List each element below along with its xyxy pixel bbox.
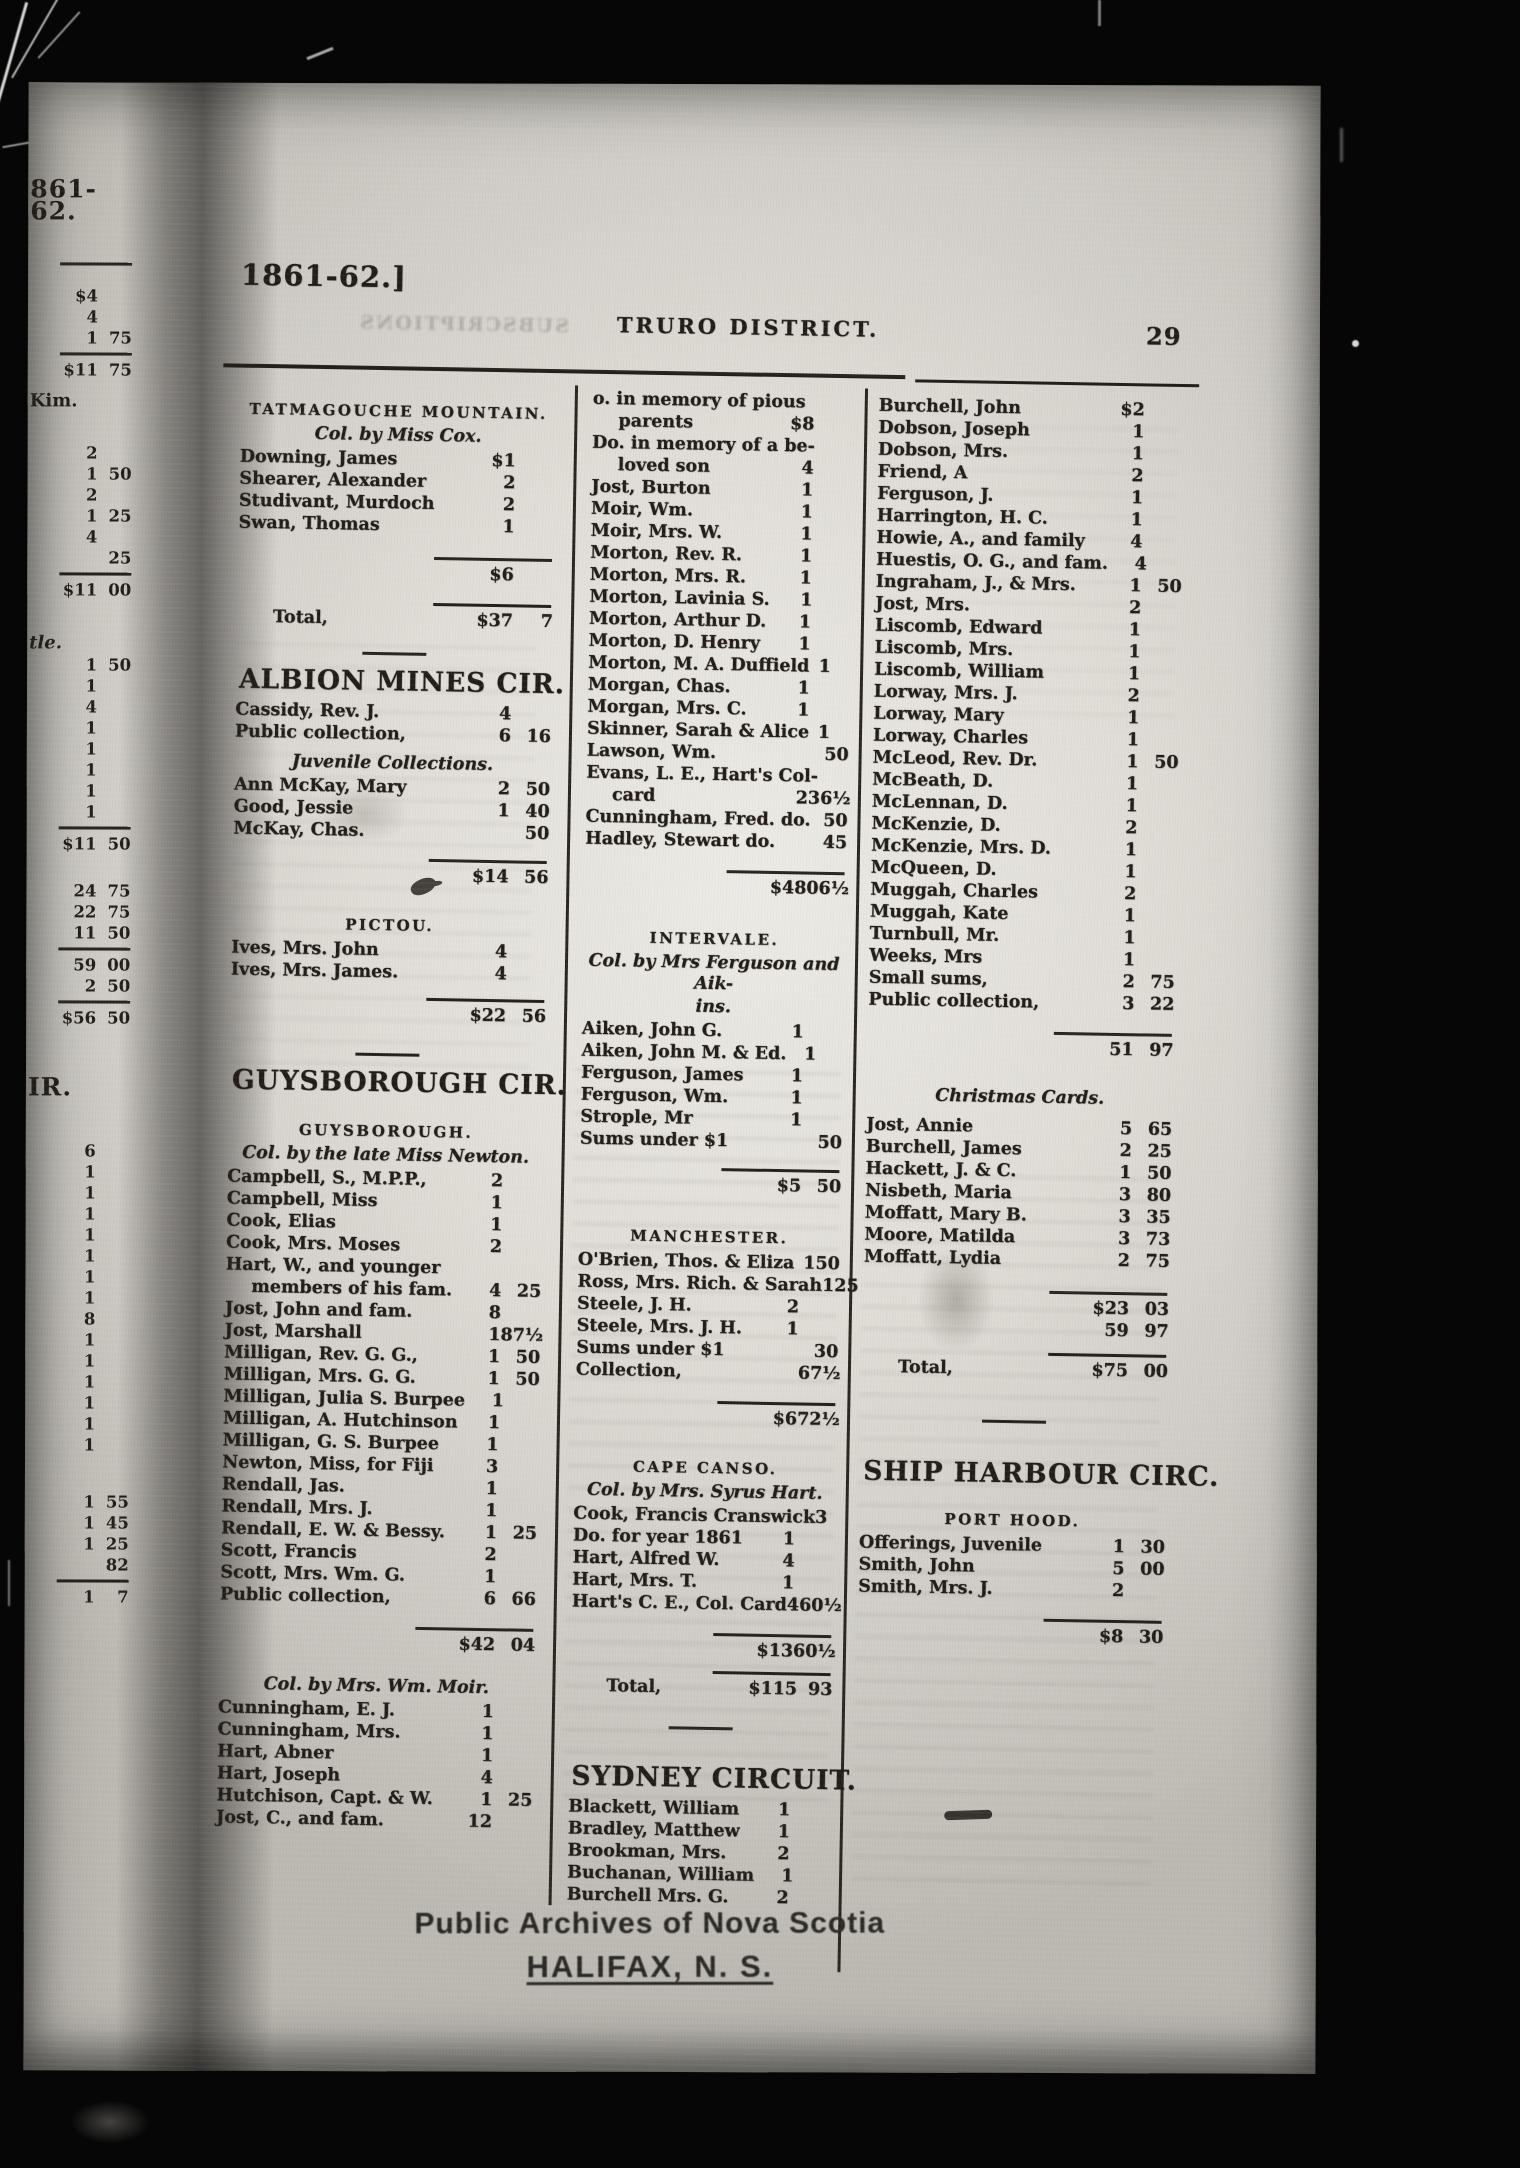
amount-dollars: 1: [766, 633, 810, 656]
section-heading: SHIP HARBOUR CIRC.: [863, 1461, 1163, 1488]
entry-name: Morton, Rev. R.: [590, 542, 768, 567]
amount-cents: 60½: [793, 1640, 833, 1663]
amount-dollars: 2: [764, 787, 808, 810]
amount-cents: 30: [798, 1340, 838, 1363]
collector-note: Juvenile Collections.: [234, 751, 550, 778]
amount-dollars: 12: [448, 1810, 492, 1833]
amount-dollars: 1: [453, 1499, 497, 1522]
separator-dash: [982, 1420, 1046, 1424]
entry-name: Ferguson, James: [581, 1062, 759, 1087]
amount-dollars: 1: [769, 479, 813, 502]
stamp-line-2: HALIFAX, N. S.: [340, 1948, 960, 1985]
amount-dollars: 1: [1097, 575, 1141, 598]
amount-dollars: 1: [449, 1722, 493, 1745]
amount-dollars: 3: [1087, 1183, 1131, 1206]
amount-cents: [1124, 1596, 1164, 1597]
separator-dash: [355, 1053, 419, 1057]
subtotal-spacer: [868, 1051, 1090, 1055]
amount-dollars: 4: [463, 963, 507, 986]
amount-cents: [1144, 437, 1184, 438]
amount-cents: [1143, 525, 1183, 526]
ledger-entry: Sums under $150: [580, 1128, 842, 1155]
amount-dollars: 4: [787, 1594, 800, 1616]
amount-dollars: $48: [762, 877, 806, 900]
amount-cents: [507, 979, 547, 980]
amount-dollars: 1: [453, 1521, 497, 1544]
amount-cents: [789, 1859, 829, 1860]
entry-name: Brookman, Mrs.: [567, 1840, 745, 1865]
amount-dollars: 1: [759, 1065, 803, 1088]
amount-dollars: 1: [758, 1087, 802, 1110]
amount-dollars: 4: [750, 1550, 794, 1573]
subtotal-spacer: [575, 1421, 753, 1424]
amount-cents: [502, 1252, 542, 1253]
amount-cents: [492, 1827, 532, 1828]
amount-dollars: 2: [1097, 597, 1141, 620]
amount-cents: [1135, 965, 1175, 966]
amount-dollars: 1: [449, 1744, 493, 1767]
microfilm-scan: { "header": { "edition": "1861-62.]", "t…: [0, 0, 1520, 2168]
amount-dollars: 1: [1096, 663, 1140, 686]
amount-cents: [1137, 833, 1177, 834]
amount-cents: [1142, 547, 1182, 548]
amount-cents: [514, 580, 554, 581]
amount-dollars: 1: [1081, 1535, 1125, 1558]
subtotal-row: $830: [857, 1622, 1163, 1649]
entry-name: Collection,: [576, 1359, 754, 1384]
entry-name: Jost, Burton: [591, 476, 769, 501]
amount-cents: [500, 1428, 539, 1429]
amount-cents: [813, 518, 853, 519]
film-scratch: [11, 0, 59, 78]
page-number: 29: [1146, 321, 1182, 351]
amount-dollars: 1: [1094, 773, 1138, 796]
amount-dollars: 1: [1087, 1161, 1131, 1184]
amount-cents: [812, 606, 851, 607]
amount-dollars: 1: [751, 1528, 795, 1551]
amount-dollars: 1: [768, 567, 812, 590]
amount-cents: [804, 1038, 844, 1039]
amount-dollars: $2: [1101, 399, 1145, 422]
amount-cents: 80: [1131, 1184, 1171, 1207]
amount-dollars: 1: [452, 1565, 496, 1588]
entry-name: Steele, J. H.: [577, 1293, 755, 1318]
amount-cents: [1135, 943, 1175, 944]
entry-name: Ives, Mrs. James.: [231, 959, 463, 985]
amount-dollars: 2: [1080, 1579, 1124, 1602]
amount-cents: [790, 1815, 830, 1816]
amount-dollars: 2: [471, 472, 515, 495]
amount-dollars: 2: [1086, 1249, 1130, 1272]
amount-cents: 50: [1131, 1162, 1171, 1185]
amount-cents: [504, 1406, 539, 1407]
amount-cents: [803, 1103, 843, 1104]
amount-dollars: 1: [450, 1700, 494, 1723]
amount-cents: 35: [1130, 1206, 1170, 1229]
subtotal-spacer: [230, 1016, 462, 1020]
collector-note-line-2: ins.: [582, 995, 844, 1021]
amount-cents: [809, 716, 849, 717]
amount-dollars: 2: [1088, 1139, 1132, 1162]
sum-spacer: [863, 1332, 1085, 1336]
amount-cents: [814, 474, 854, 475]
subtotal-rule: [429, 859, 547, 864]
entry-name: Public collection,: [235, 721, 467, 747]
entry-name: Morton, Arthur D.: [589, 608, 767, 633]
amount-dollars: 1: [760, 1021, 804, 1044]
amount-dollars: 1: [1091, 949, 1135, 972]
amount-cents: 56: [508, 866, 548, 889]
amount-dollars: 2: [452, 1543, 496, 1566]
subtotal-spacer: [219, 1645, 451, 1649]
section-heading: ALBION MINES CIR.: [239, 669, 549, 696]
amount-dollars: $22: [462, 1005, 506, 1028]
amount-cents: [1139, 723, 1179, 724]
entry-name: Swan, Thomas: [238, 512, 470, 538]
amount-cents: 50: [815, 1253, 840, 1275]
amount-dollars: 1: [765, 699, 809, 722]
amount-cents: [502, 1230, 542, 1231]
subtotal-spacer: [579, 1188, 757, 1191]
subtotal-rule: [434, 557, 552, 562]
amount-dollars: 1: [454, 1433, 498, 1456]
amount-dollars: 1: [1091, 927, 1135, 950]
amount-cents: 30: [1125, 1536, 1165, 1559]
amount-dollars: 3: [1086, 1205, 1130, 1228]
amount-dollars: 2: [458, 1236, 502, 1259]
amount-cents: 60½: [799, 1595, 839, 1618]
amount-dollars: 1: [767, 611, 811, 634]
amount-cents: 50: [1141, 575, 1181, 598]
subsection-heading: INTERVALE.: [583, 926, 845, 953]
amount-cents: 50: [823, 810, 848, 832]
collector-note: Col. by the late Miss Newton.: [227, 1142, 543, 1169]
amount-dollars: $6: [753, 1408, 797, 1431]
subsection-heading: TATMAGOUCHE MOUNTAIN.: [240, 398, 556, 426]
amount-cents: [811, 628, 851, 629]
amount-cents: 40: [509, 800, 549, 823]
film-scratch: [38, 11, 81, 58]
subtotal-rule: [717, 1401, 835, 1406]
entry-name: Hart's C. E., Col. Card: [572, 1591, 787, 1617]
amount-dollars: 2: [755, 1296, 799, 1319]
separator-dash: [669, 1726, 733, 1730]
entry-name: Morton, D. Henry: [588, 630, 766, 655]
amount-cents: [498, 1472, 538, 1473]
amount-dollars: 1: [750, 1572, 794, 1595]
amount-cents: 50: [500, 1346, 540, 1369]
header-rule: [915, 379, 1199, 387]
entry-name: Morton, Lavinia S.: [589, 586, 770, 611]
amount-cents: [1140, 701, 1180, 702]
amount-cents: 25: [1132, 1140, 1172, 1163]
subtotal-spacer: [232, 878, 464, 882]
amount-cents: [1137, 877, 1177, 878]
amount-cents: 03: [1129, 1298, 1169, 1321]
total-rule: [1048, 1353, 1166, 1358]
amount-dollars: 1: [1096, 641, 1140, 664]
entry-name: Morgan, Mrs. C.: [587, 696, 765, 721]
amount-cents: [799, 1312, 839, 1313]
amount-dollars: 1: [1094, 795, 1138, 818]
amount-dollars: 1: [822, 1275, 835, 1297]
amount-cents: [810, 694, 850, 695]
subsection-heading: PORT HOOD.: [859, 1507, 1165, 1534]
collector-note: Col. by Mrs. Syrus Hart.: [574, 1480, 836, 1506]
amount-cents: [812, 540, 852, 541]
amount-cents: [812, 584, 852, 585]
amount-cents: [496, 1582, 536, 1583]
amount-cents: 75: [1135, 971, 1175, 994]
spacer: [861, 1378, 1167, 1411]
total-row: Total,$11593: [570, 1675, 832, 1702]
stamp-line-1: Public Archives of Nova Scotia: [340, 1906, 960, 1941]
ledger-entry: Collection,67½: [576, 1359, 838, 1386]
amount-dollars: 1: [1094, 751, 1138, 774]
amount-cents: 72½: [797, 1408, 837, 1431]
entry-name: Do. for year 1861: [573, 1525, 751, 1550]
page-title: TRURO DISTRICT.: [528, 311, 968, 344]
amount-dollars: 4: [1108, 553, 1147, 576]
section-heading: SYDNEY CIRCUIT.: [571, 1766, 828, 1792]
entry-name: Morgan, Chas.: [588, 674, 766, 699]
amount-dollars: 3: [1086, 1227, 1130, 1250]
amount-dollars: 1: [1092, 905, 1136, 928]
amount-dollars: 1: [465, 1390, 504, 1413]
amount-cents: [802, 1125, 842, 1126]
amount-cents: [516, 466, 556, 467]
amount-dollars: 1: [1092, 861, 1136, 884]
amount-cents: [813, 496, 853, 497]
entry-name-continued: parents: [592, 410, 770, 435]
entry-name: Moffatt, Lydia: [864, 1246, 1086, 1272]
amount-cents: 25: [501, 1280, 541, 1303]
amount-cents: 67½: [798, 1362, 838, 1385]
total-label: Total,: [237, 606, 469, 632]
amount-cents: [1145, 415, 1185, 416]
scanned-page: 861-62.$44175$1175Kim.21502125425$1100tl…: [23, 82, 1320, 2073]
amount-cents: [1139, 745, 1179, 746]
collector-note: Col. by Miss Cox.: [240, 423, 556, 450]
amount-dollars: $75: [1084, 1359, 1128, 1382]
film-scratch: [306, 47, 333, 60]
amount-cents: 87½: [500, 1324, 540, 1347]
entry-name: Steele, Mrs. J. H.: [576, 1315, 754, 1340]
amount-cents: 50: [500, 1368, 540, 1391]
spacer: [569, 1740, 831, 1755]
amount-dollars: 1: [448, 1788, 492, 1811]
amount-dollars: $37: [469, 610, 513, 633]
entry-name: Sums under $1: [576, 1337, 754, 1362]
amount-cents: [795, 1544, 835, 1545]
amount-cents: [1138, 811, 1178, 812]
amount-dollars: $23: [1085, 1297, 1129, 1320]
amount-dollars: 1: [809, 722, 830, 744]
amount-dollars: 4: [449, 1766, 493, 1789]
amount-dollars: 4: [769, 457, 813, 480]
collector-note: Col. by Mrs Ferguson and Aik-: [582, 951, 845, 998]
entry-name: Hadley, Stewart do.: [585, 828, 775, 853]
amount-cents: [503, 1186, 543, 1187]
entry-name: Ferguson, Wm.: [581, 1084, 759, 1109]
entry-name: Lawson, Wm.: [587, 740, 765, 765]
amount-cents: [814, 430, 854, 431]
amount-cents: [494, 1717, 534, 1718]
amount-dollars: 1: [766, 677, 810, 700]
amount-dollars: 6: [467, 725, 511, 748]
total-rule: [713, 1671, 831, 1676]
amount-dollars: 2: [1091, 971, 1135, 994]
entry-name-continued: loved son: [592, 454, 770, 479]
amount-cents: 00: [1124, 1558, 1164, 1581]
amount-cents: [1143, 481, 1183, 482]
collector-note: Col. by Mrs. Wm. Moir.: [218, 1673, 534, 1700]
amount-dollars: 1: [1095, 729, 1139, 752]
amount-dollars: 1: [1099, 509, 1143, 532]
amount-dollars: 1: [754, 1318, 798, 1341]
amount-cents: 25: [492, 1789, 532, 1812]
amount-dollars: $115: [748, 1678, 792, 1701]
amount-cents: [515, 488, 555, 489]
spacer: [861, 1433, 1167, 1450]
amount-cents: [507, 957, 547, 958]
amount-dollars: 1: [458, 1214, 502, 1237]
entry-name: Morton, Mrs. R.: [590, 564, 768, 589]
amount-cents: [794, 1566, 834, 1567]
subtotal-rule: [727, 870, 845, 875]
amount-dollars: 3: [815, 1507, 828, 1529]
subtotal-rule: [713, 1633, 831, 1638]
amount-cents: [810, 650, 850, 651]
amount-cents: 25: [497, 1522, 537, 1545]
entry-name-continued: card: [586, 784, 764, 809]
amount-dollars: 2: [745, 1843, 789, 1866]
amount-dollars: 2: [1093, 817, 1137, 840]
amount-cents: 97: [1128, 1320, 1168, 1343]
amount-cents: [1138, 789, 1178, 790]
amount-dollars: 1: [456, 1345, 500, 1368]
entry-name: Aiken, John G.: [582, 1018, 760, 1043]
entry-name: Sums under $1: [580, 1128, 758, 1153]
spacer: [867, 1057, 1173, 1088]
amount-cents: [789, 1903, 829, 1904]
amount-dollars: $5: [757, 1175, 801, 1198]
amount-cents: [803, 1082, 843, 1083]
amount-cents: [497, 1516, 537, 1517]
total-rule: [433, 603, 551, 608]
amount-dollars: 2: [459, 1170, 503, 1193]
subtotal-spacer: [863, 1310, 1085, 1314]
amount-dollars: 1: [470, 516, 514, 539]
subsection-heading: MANCHESTER.: [578, 1224, 840, 1251]
amount-dollars: 1: [794, 1252, 815, 1274]
amount-cents: 22: [1134, 993, 1174, 1016]
film-speck: [1352, 340, 1359, 347]
amount-cents: [514, 532, 554, 533]
amount-cents: 97: [1133, 1039, 1173, 1062]
amount-cents: 50: [801, 1175, 841, 1198]
amount-dollars: 1: [465, 800, 509, 823]
amount-cents: [498, 1494, 538, 1495]
amount-dollars: [775, 847, 813, 848]
printed-page-content: 1861-62.] SUBSCRIPTIONS TRURO DISTRICT. …: [0, 78, 1324, 2088]
amount-cents: 25: [834, 1275, 859, 1297]
subsection-heading: CAPE CANSO.: [574, 1455, 836, 1482]
amount-cents: 06½: [806, 878, 846, 901]
ledger-entry: Jost, C., and fam.12: [216, 1806, 532, 1834]
amount-dollars: [765, 759, 809, 760]
entry-name: Moir, Wm.: [591, 498, 769, 523]
amount-cents: 36½: [808, 788, 848, 811]
amount-cents: 73: [1130, 1228, 1170, 1251]
amount-dollars: $6: [470, 564, 514, 587]
amount-dollars: 2: [1096, 685, 1140, 708]
amount-cents: [1144, 459, 1184, 460]
amount-dollars: 1: [809, 656, 831, 678]
amount-cents: [812, 562, 852, 563]
amount-dollars: 1: [1097, 619, 1141, 642]
amount-dollars: 1: [1095, 707, 1139, 730]
entry-name: Hart, Alfred W.: [572, 1547, 750, 1572]
amount-cents: [1147, 569, 1182, 570]
amount-dollars: $8: [770, 413, 814, 436]
amount-dollars: $13: [749, 1640, 793, 1663]
amount-cents: 16: [511, 725, 551, 748]
entry-name: Strople, Mr: [580, 1106, 758, 1131]
amount-cents: [793, 1881, 829, 1882]
film-scratch: [1098, 0, 1101, 26]
amount-dollars: 6: [452, 1587, 496, 1610]
amount-cents: [503, 1208, 543, 1209]
subtotal-spacer: [857, 1638, 1079, 1642]
amount-dollars: 1: [459, 1192, 503, 1215]
amount-dollars: 2: [471, 494, 515, 517]
amount-dollars: 1: [746, 1799, 790, 1822]
entry-name: Moir, Mrs. W.: [590, 520, 768, 545]
amount-dollars: [465, 838, 509, 839]
amount-dollars: 3: [454, 1455, 498, 1478]
amount-dollars: $8: [1079, 1625, 1123, 1648]
ledger-entry: Hart's C. E., Col. Card460½: [572, 1591, 834, 1618]
column-2: o. in memory of piousparents$8Do. in mem…: [567, 388, 855, 1910]
spacer: [228, 1099, 544, 1113]
total-label: Total,: [570, 1675, 748, 1700]
amount-dollars: 1: [454, 1477, 498, 1500]
amount-cents: 7: [513, 610, 553, 633]
amount-dollars: 1: [769, 501, 813, 524]
entry-name: Burchell Mrs. G.: [567, 1884, 745, 1909]
amount-cents: [1143, 503, 1183, 504]
amount-dollars: 3: [1090, 993, 1134, 1016]
edition-year: 1861-62.]: [241, 258, 408, 295]
amount-cents: 45: [813, 832, 848, 855]
amount-cents: [794, 1588, 834, 1589]
amount-dollars: 2: [1092, 883, 1136, 906]
column-3: Burchell, John$2Dobson, Joseph1Dobson, M…: [857, 395, 1185, 1649]
film-speck: [1340, 128, 1343, 162]
amount-cents: 50: [509, 822, 549, 845]
amount-cents: [1136, 921, 1176, 922]
amount-cents: 50: [510, 778, 550, 801]
amount-dollars: 1: [456, 1367, 500, 1390]
amount-cents: [515, 510, 555, 511]
subtotal-rule: [1054, 1032, 1172, 1037]
separator-dash: [362, 652, 426, 656]
entry-name: Buchanan, William: [567, 1862, 754, 1887]
amount-dollars: 4: [457, 1280, 501, 1303]
amount-dollars: 1: [768, 523, 812, 546]
ledger-entry: Hadley, Stewart do.45: [585, 828, 847, 855]
